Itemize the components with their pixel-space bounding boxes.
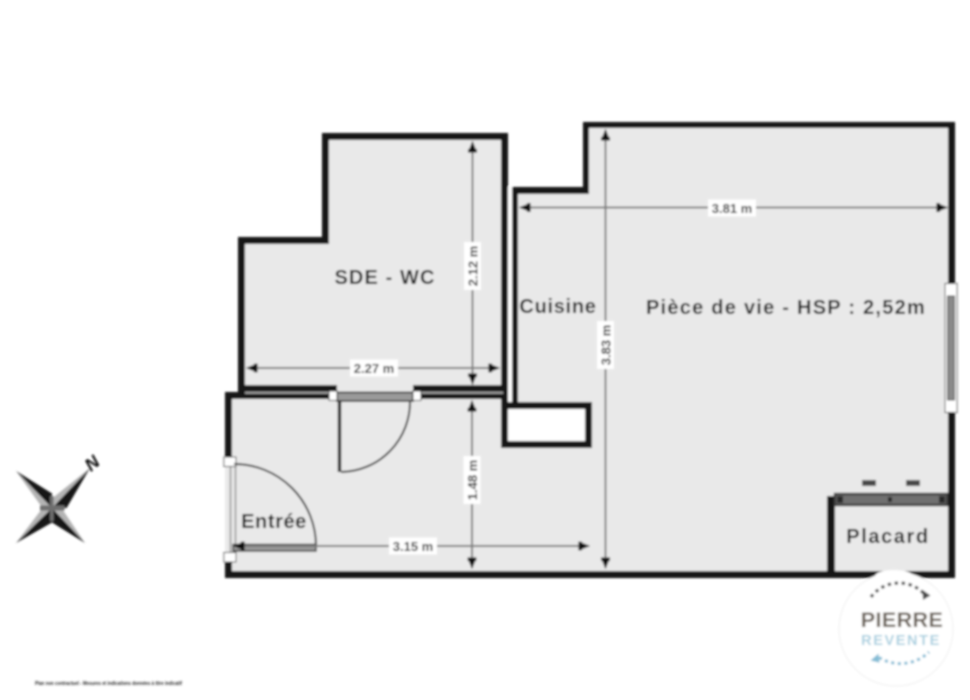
svg-text:Entrée: Entrée xyxy=(241,511,307,533)
svg-text:SDE - WC: SDE - WC xyxy=(334,267,435,289)
svg-text:Placard: Placard xyxy=(846,526,929,548)
svg-text:2.27 m: 2.27 m xyxy=(354,361,394,376)
svg-text:3.81 m: 3.81 m xyxy=(712,201,752,216)
svg-text:Pièce de vie - HSP : 2,52m: Pièce de vie - HSP : 2,52m xyxy=(646,297,926,319)
svg-text:Cuisine: Cuisine xyxy=(519,296,596,318)
svg-text:Plan non contractuel - Mesures: Plan non contractuel - Mesures et indica… xyxy=(35,681,182,687)
svg-text:3.15 m: 3.15 m xyxy=(393,539,433,554)
svg-text:3.83 m: 3.83 m xyxy=(598,325,613,365)
svg-text:REVENTE: REVENTE xyxy=(861,633,941,649)
svg-text:N: N xyxy=(81,451,105,475)
svg-text:1.48 m: 1.48 m xyxy=(465,460,480,500)
svg-text:2.12 m: 2.12 m xyxy=(465,246,480,286)
svg-text:PIERRE: PIERRE xyxy=(861,608,943,632)
